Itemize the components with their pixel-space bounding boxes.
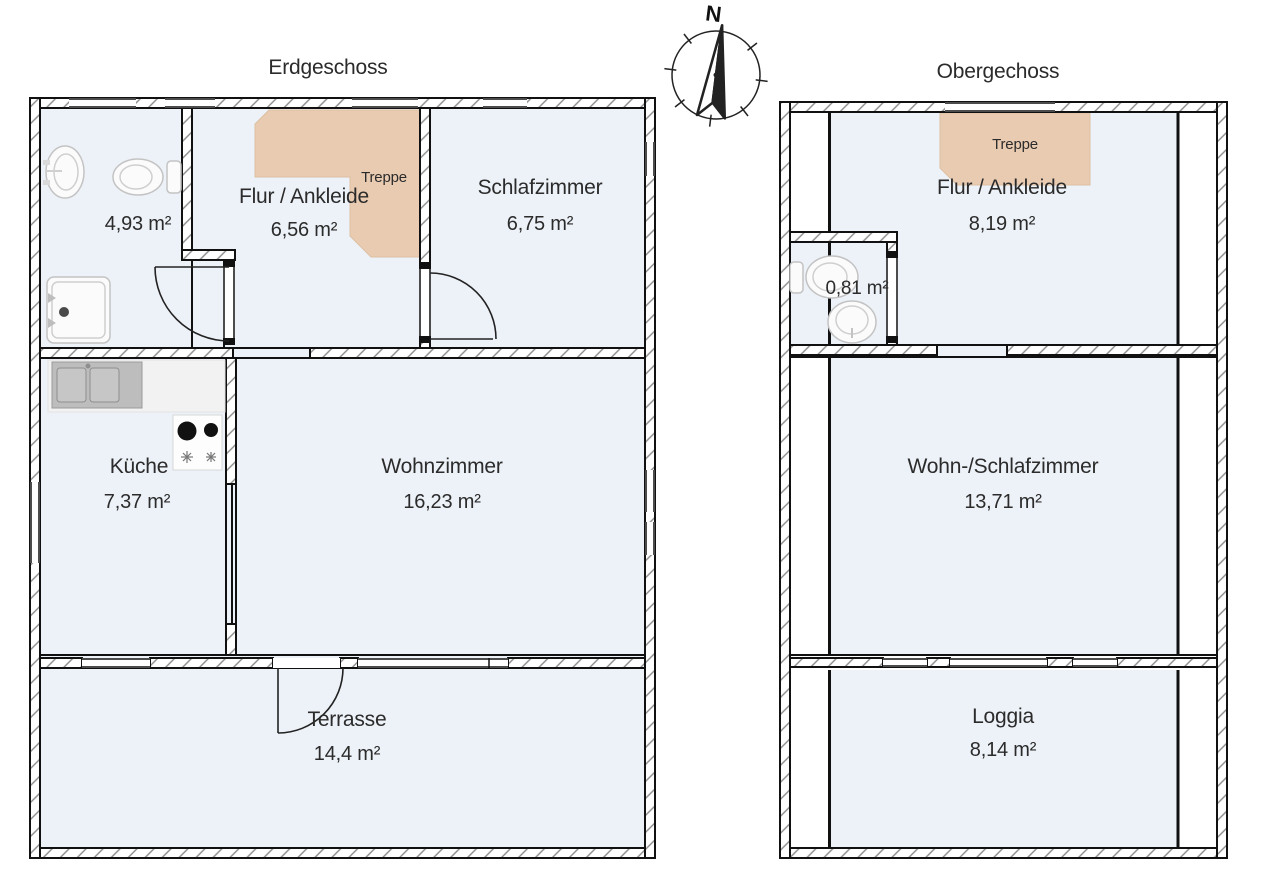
bathroom-area-label: 4,93 m²	[105, 213, 172, 235]
window	[165, 98, 215, 108]
window	[358, 658, 508, 668]
terrasse-area-label: 14,4 m²	[314, 743, 381, 765]
window	[645, 142, 655, 176]
kueche-area-label: 7,37 m²	[104, 491, 171, 513]
compass-rose: N	[658, 0, 776, 133]
window	[945, 102, 1055, 112]
floorplan-page: Erdgeschoss	[0, 0, 1268, 890]
kitchen-sink-icon	[52, 362, 142, 408]
window	[645, 522, 655, 555]
flur-area-label: 6,56 m²	[271, 219, 338, 241]
schlafzimmer-area-label: 6,75 m²	[507, 213, 574, 235]
obergeschoss-title: Obergechoss	[937, 60, 1060, 83]
terrasse-name-label: Terrasse	[308, 708, 387, 731]
window	[1073, 658, 1117, 667]
og-loggia-name-label: Loggia	[972, 705, 1034, 728]
kueche-name-label: Küche	[110, 455, 169, 478]
og-treppe-label: Treppe	[992, 136, 1038, 153]
stove-icon	[173, 415, 222, 470]
toilet-icon	[113, 159, 181, 195]
window	[82, 658, 150, 668]
window	[645, 470, 655, 512]
erdgeschoss-plan: Erdgeschoss	[30, 56, 655, 858]
wohnzimmer-name-label: Wohnzimmer	[381, 455, 503, 478]
floorplan-canvas: Erdgeschoss	[0, 0, 1268, 890]
og-loggia-area-label: 8,14 m²	[970, 739, 1037, 761]
north-arrow-icon	[697, 24, 736, 119]
sink-icon	[828, 301, 876, 343]
window	[352, 98, 418, 108]
og-wc-area-label: 0,81 m²	[825, 278, 888, 299]
og-flur-name-label: Flur / Ankleide	[937, 176, 1067, 199]
obergeschoss-plan: Obergechoss	[780, 60, 1227, 858]
og-wohn-name-label: Wohn-/Schlafzimmer	[908, 455, 1099, 478]
compass-north-label: N	[704, 0, 723, 27]
erdgeschoss-title: Erdgeschoss	[268, 56, 387, 79]
window	[483, 98, 527, 108]
flur-name-label: Flur / Ankleide	[239, 185, 369, 208]
window	[883, 658, 927, 667]
og-flur-area-label: 8,19 m²	[969, 213, 1036, 235]
window	[30, 482, 40, 563]
window	[950, 658, 1047, 667]
shower-icon	[47, 277, 110, 343]
window	[69, 98, 136, 108]
schlafzimmer-name-label: Schlafzimmer	[478, 176, 603, 199]
treppe-label: Treppe	[361, 169, 407, 186]
wohnzimmer-area-label: 16,23 m²	[403, 491, 481, 513]
og-wohn-area-label: 13,71 m²	[964, 491, 1042, 513]
